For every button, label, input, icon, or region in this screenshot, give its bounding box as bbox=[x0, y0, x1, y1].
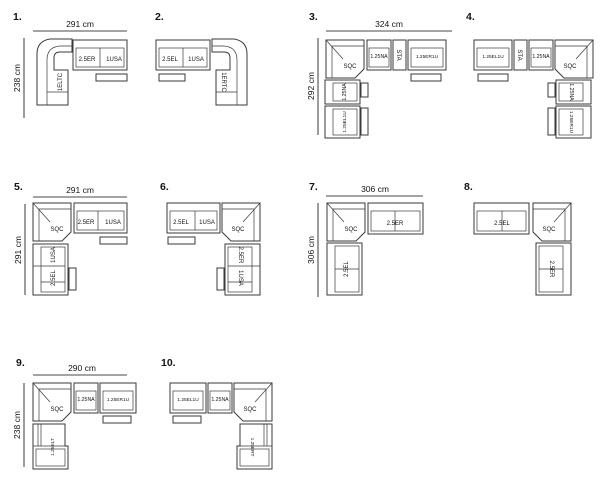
module-label-sqc: SQC bbox=[50, 407, 64, 413]
config-number: 5. bbox=[14, 181, 23, 193]
module-label-125er1u: 1.25ER1U bbox=[416, 54, 439, 60]
module-label-1usa: 1USA bbox=[188, 57, 204, 63]
side-cushion bbox=[361, 108, 368, 135]
module-label-25el: 2.5EL bbox=[494, 221, 510, 227]
width-dim-label: 306 cm bbox=[361, 184, 389, 194]
module-label-25er: 2.5ER bbox=[387, 221, 404, 227]
module-label-125el1u: 1.25EL1U bbox=[482, 54, 504, 60]
module-label-sqc: SQC bbox=[563, 64, 577, 70]
sofa-configuration-sheet: 1. 291 cm 238 cm 1ELTC 2.5ER 1USA 2. 2.5… bbox=[0, 0, 606, 485]
config-number: 3. bbox=[309, 11, 318, 23]
module-label-25el: 2.5EL bbox=[162, 57, 178, 63]
module-label-125el1u: 1.25EL1U bbox=[177, 397, 199, 403]
module-label-25er: 2.5ER bbox=[548, 261, 554, 278]
module-label-sta: STA bbox=[516, 49, 522, 60]
height-dim-label: 306 cm bbox=[306, 236, 316, 264]
module-label-25er: 2.5ER bbox=[237, 247, 243, 264]
side-cushion bbox=[217, 268, 224, 290]
side-cushion bbox=[361, 83, 368, 97]
module-label-125elt: 1.25ELT bbox=[50, 438, 56, 456]
module-label-sqc: SQC bbox=[344, 227, 358, 233]
config-number: 8. bbox=[464, 181, 473, 193]
side-cushion bbox=[548, 108, 555, 135]
module-25el bbox=[474, 203, 529, 234]
ottoman bbox=[103, 416, 131, 423]
module-label-125na: 1.25NA bbox=[532, 54, 550, 60]
config-number: 6. bbox=[160, 181, 169, 193]
config-5: 5. 291 cm 291 cm SQC 2.5ER 1USA 1USA 2.5… bbox=[8, 178, 148, 308]
module-label-sqc: SQC bbox=[243, 407, 257, 413]
config-9: 9. 290 cm 238 cm SQC 1.25NA 1.25ER1U 1.2… bbox=[8, 352, 158, 482]
module-label-125na: 1.25NA bbox=[77, 397, 95, 403]
config-number: 9. bbox=[16, 357, 25, 369]
module-label-25el: 2.5EL bbox=[344, 261, 350, 277]
config-8: 8. 2.5EL SQC 2.5ER bbox=[460, 178, 605, 308]
config-1: 1. 291 cm 238 cm 1ELTC 2.5ER 1USA bbox=[8, 8, 148, 126]
module-label-1eltc: 1ELTC bbox=[58, 72, 64, 91]
side-cushion bbox=[69, 268, 76, 290]
module-label-1usa: 1USA bbox=[199, 220, 215, 226]
height-dim-label: 291 cm bbox=[13, 236, 23, 264]
ottoman bbox=[478, 74, 508, 81]
ottoman bbox=[159, 74, 185, 81]
ottoman bbox=[100, 237, 127, 244]
module-label-25el: 2.5EL bbox=[51, 270, 57, 286]
corner-chaise-module bbox=[212, 39, 247, 105]
config-7: 7. 306 cm 306 cm SQC 2.5ER 2.5EL bbox=[305, 178, 455, 308]
module-label-1ertc: 1ERTC bbox=[220, 72, 226, 92]
config-3: 3. 324 cm 292 cm SQC 1.25NA STA 1.25ER1U… bbox=[305, 8, 455, 148]
ottoman bbox=[168, 237, 195, 244]
ottoman bbox=[411, 74, 441, 81]
height-dim-label: 238 cm bbox=[12, 64, 22, 92]
width-dim-label: 291 cm bbox=[66, 19, 94, 29]
module-25er bbox=[368, 203, 423, 234]
module-label-125na: 1.25NA bbox=[568, 83, 574, 101]
module-label-25er: 2.5ER bbox=[79, 57, 96, 63]
config-2: 2. 2.5EL 1USA 1ERTC bbox=[150, 8, 275, 126]
config-4: 4. 1.25EL1U STA 1.25NA SQC 1.25NA 1.25ER… bbox=[460, 8, 605, 148]
config-6: 6. 2.5EL 1USA SQC 2.5ER 1USA bbox=[153, 178, 288, 308]
ottoman bbox=[173, 416, 201, 423]
module-label-1usa: 1USA bbox=[237, 270, 243, 286]
module-label-125el1u: 1.25EL1U bbox=[342, 111, 348, 133]
module-label-125ert: 1.25ERT bbox=[249, 438, 255, 457]
config-number: 7. bbox=[309, 181, 318, 193]
sofa-row-module bbox=[167, 203, 220, 233]
config-number: 4. bbox=[466, 11, 475, 23]
module-label-sqc: SQC bbox=[231, 227, 245, 233]
module-label-25el: 2.5EL bbox=[173, 220, 189, 226]
config-number: 10. bbox=[161, 357, 176, 369]
sofa-row-module bbox=[74, 203, 127, 233]
module-label-1usa: 1USA bbox=[106, 57, 122, 63]
module-label-125er1u: 1.25ER1U bbox=[568, 111, 574, 134]
module-label-125er1u: 1.25ER1U bbox=[107, 397, 130, 403]
module-label-25er: 2.5ER bbox=[78, 220, 95, 226]
module-label-sqc: SQC bbox=[542, 227, 556, 233]
height-dim-label: 238 cm bbox=[12, 411, 22, 439]
width-dim-label: 290 cm bbox=[68, 363, 96, 373]
module-label-125na: 1.25NA bbox=[211, 397, 229, 403]
module-label-125na: 1.25NA bbox=[342, 83, 348, 101]
side-cushion bbox=[548, 83, 555, 97]
module-label-sqc: SQC bbox=[50, 227, 64, 233]
width-dim-label: 324 cm bbox=[375, 19, 403, 29]
module-label-sta: STA bbox=[395, 49, 401, 60]
config-10: 10. 1.25EL1U 1.25NA SQC 1.25ERT bbox=[153, 352, 293, 482]
width-dim-label: 291 cm bbox=[66, 185, 94, 195]
module-label-1usa: 1USA bbox=[105, 220, 121, 226]
height-dim-label: 292 cm bbox=[306, 72, 316, 100]
config-number: 1. bbox=[13, 11, 22, 23]
module-label-125na: 1.25NA bbox=[370, 54, 388, 60]
corner-chaise-module bbox=[37, 39, 72, 105]
config-number: 2. bbox=[155, 11, 164, 23]
module-label-sqc: SQC bbox=[343, 64, 357, 70]
ottoman bbox=[96, 74, 127, 81]
module-label-1usa: 1USA bbox=[51, 247, 57, 263]
